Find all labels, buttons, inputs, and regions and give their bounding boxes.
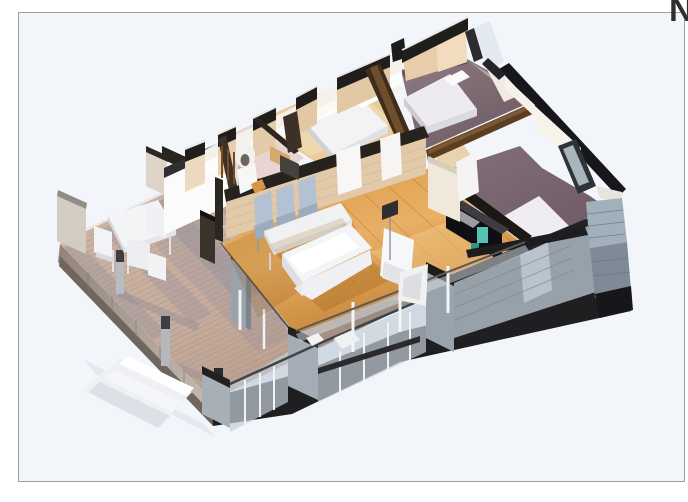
svg-text:N: N (669, 0, 688, 29)
